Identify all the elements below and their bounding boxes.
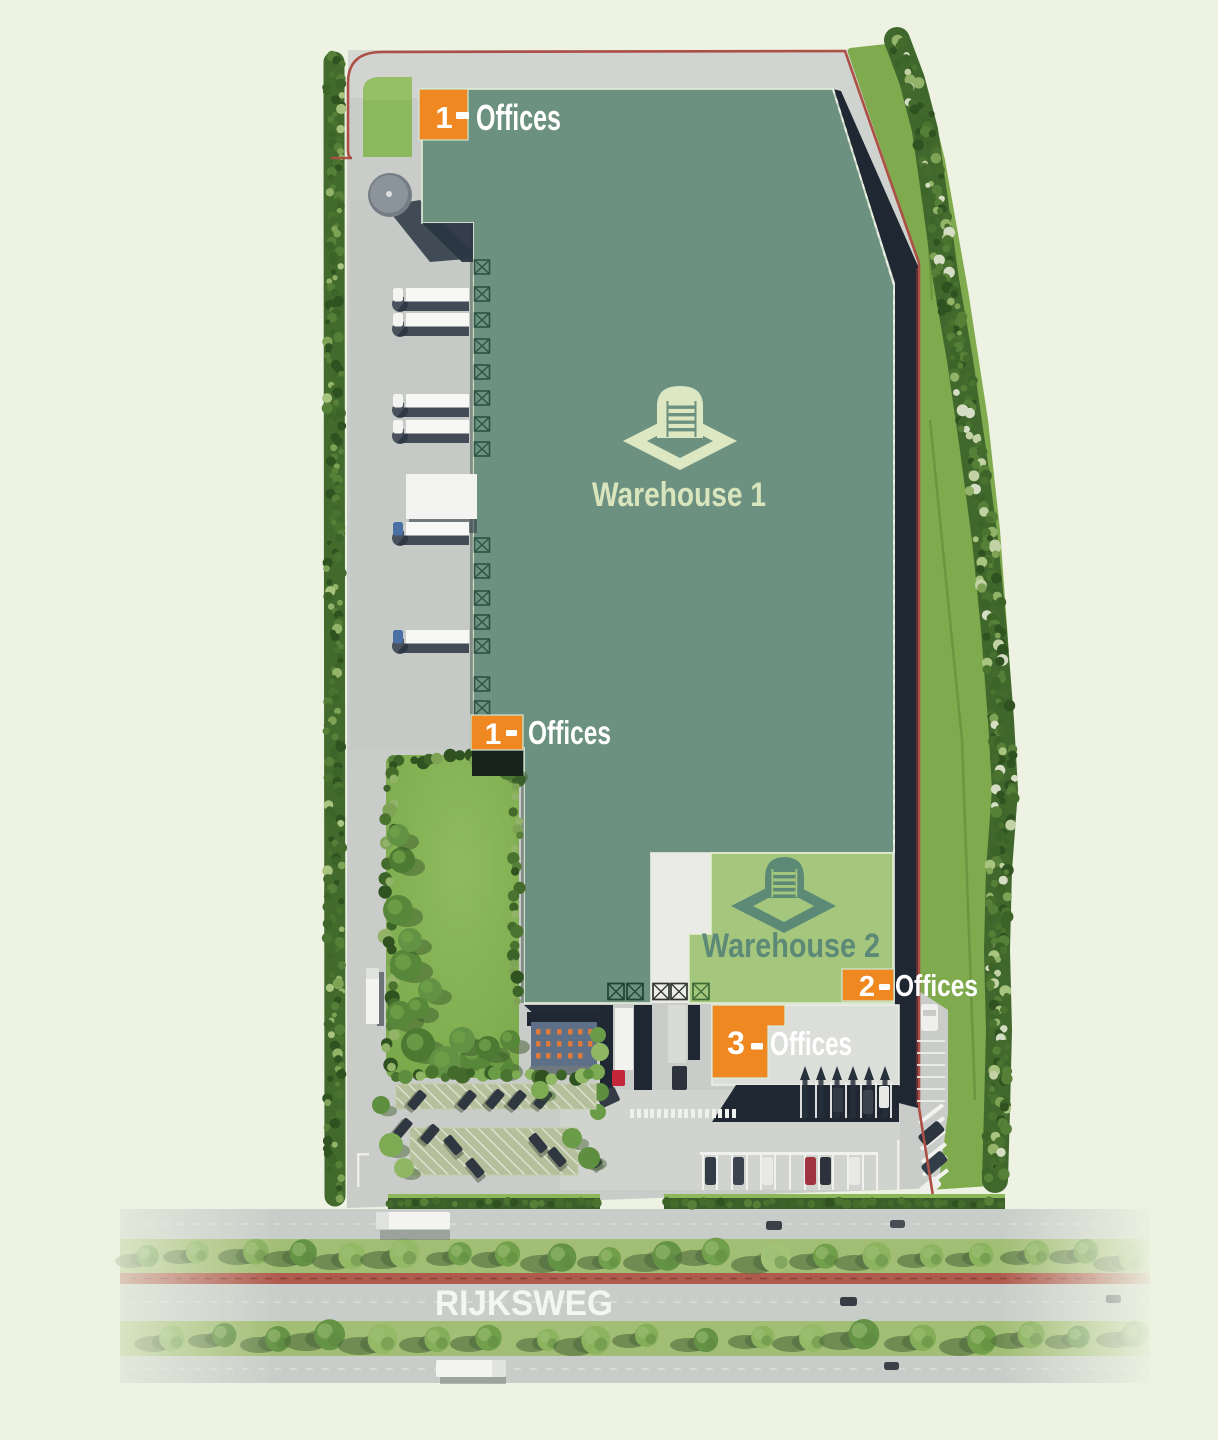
- svg-text:Offices: Offices: [528, 714, 611, 751]
- svg-text:1: 1: [485, 718, 502, 751]
- svg-text:RIJKSWEG: RIJKSWEG: [435, 1284, 613, 1323]
- svg-text:Offices: Offices: [770, 1025, 852, 1062]
- svg-text:2: 2: [859, 971, 875, 1003]
- svg-text:3: 3: [727, 1025, 745, 1061]
- svg-text:Offices: Offices: [895, 968, 978, 1003]
- svg-text:Offices: Offices: [476, 97, 561, 138]
- svg-text:Warehouse 2: Warehouse 2: [702, 927, 880, 965]
- svg-text:Warehouse 1: Warehouse 1: [592, 476, 766, 514]
- svg-text:1: 1: [435, 100, 452, 135]
